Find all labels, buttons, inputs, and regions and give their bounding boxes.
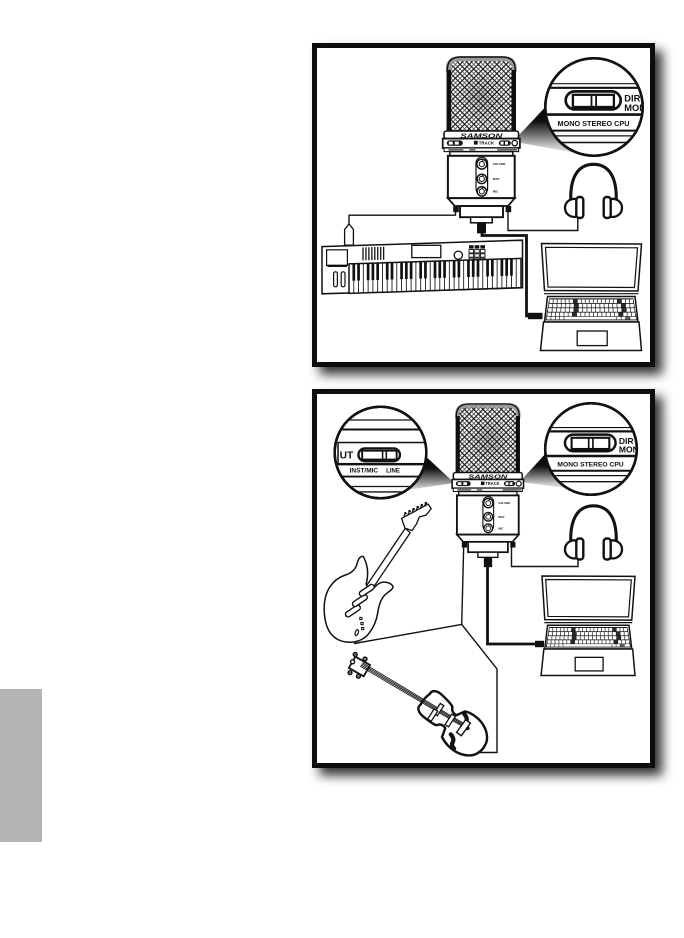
svg-text:VOLUME: VOLUME [493, 162, 506, 166]
svg-text:LINE: LINE [386, 467, 400, 474]
svg-text:INST/MIC: INST/MIC [350, 467, 379, 474]
svg-text:MONO STEREO CPU: MONO STEREO CPU [558, 121, 630, 128]
svg-text:VOLUME: VOLUME [498, 501, 510, 505]
svg-text:INST: INST [493, 177, 500, 181]
svg-text:UT: UT [340, 451, 354, 462]
svg-text:INST: INST [498, 515, 505, 519]
svg-text:TRACK: TRACK [479, 140, 495, 145]
svg-text:MONO STEREO CPU: MONO STEREO CPU [557, 461, 624, 468]
svg-text:MIC: MIC [493, 190, 499, 194]
svg-text:TRACK: TRACK [485, 481, 499, 486]
svg-text:DIR: DIR [624, 93, 640, 103]
svg-text:MIC: MIC [498, 526, 503, 530]
